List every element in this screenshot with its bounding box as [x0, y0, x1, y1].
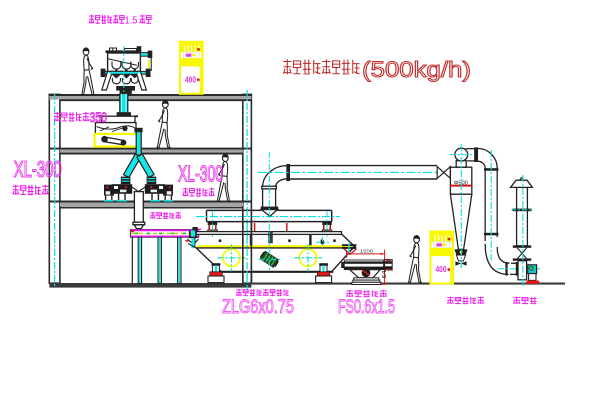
svg-text:(500kg/h): (500kg/h) [362, 57, 471, 82]
svg-text:ZLG6x0.75: ZLG6x0.75 [222, 297, 294, 318]
svg-text:XL-300: XL-300 [14, 156, 62, 182]
svg-text:FS0.6x1.5: FS0.6x1.5 [338, 297, 395, 318]
svg-text:1.5: 1.5 [125, 15, 138, 27]
svg-text:350: 350 [90, 110, 108, 125]
svg-text:1500: 1500 [360, 249, 373, 255]
svg-text:XL-300: XL-300 [178, 161, 223, 187]
